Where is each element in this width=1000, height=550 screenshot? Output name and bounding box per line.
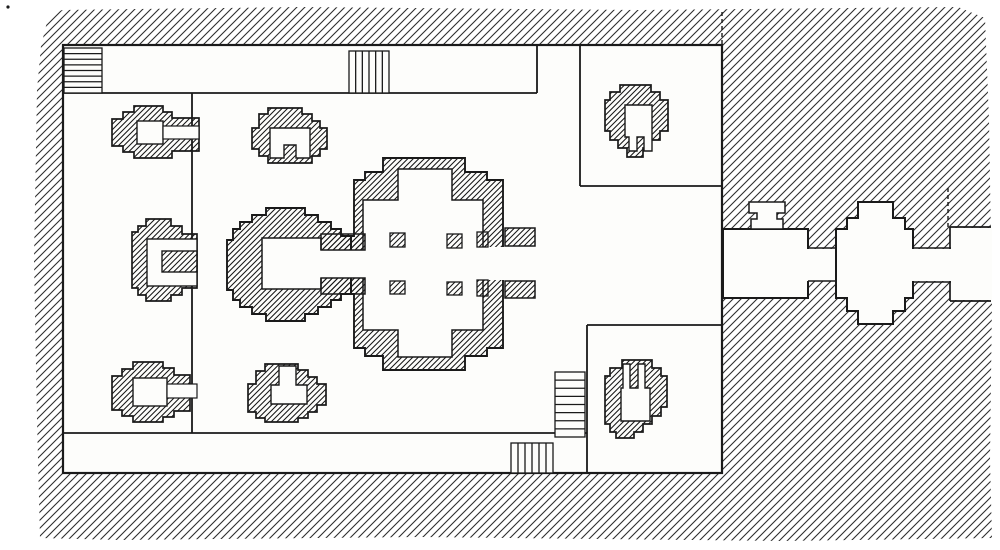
west-shrine-middle-pier <box>162 251 197 272</box>
causeway-east-floor <box>912 249 951 281</box>
east-gate-pavilion <box>836 202 913 324</box>
east-road-floor <box>950 228 992 300</box>
hall-pillar-northwest <box>390 233 405 247</box>
temple-plan-drawing: Engraved floor plan of a walled temple c… <box>0 0 1000 550</box>
hall-pillar-northeast <box>447 234 462 248</box>
plan-engraving: Engraved floor plan of a walled temple c… <box>0 0 1000 550</box>
west-passage-south-wall <box>321 278 365 294</box>
hall-pillar-southeast <box>447 282 462 295</box>
east-porch-north-wall <box>505 228 535 246</box>
causeway-west-floor <box>807 249 837 281</box>
west-passage-floor <box>319 250 365 278</box>
east-porch-south-wall <box>505 281 535 298</box>
west-shrine-north-cella <box>137 121 163 144</box>
west-shrine-south-cella <box>133 378 167 406</box>
east-door-south-pier <box>477 280 488 296</box>
east-door-north-pier <box>477 232 488 247</box>
west-passage-north-wall <box>321 234 365 250</box>
east-porch-floor <box>481 247 533 280</box>
west-sanctuary-cella <box>262 238 321 289</box>
plate-mark <box>6 5 9 8</box>
plan-layer <box>6 5 992 541</box>
west-shrine-south-door <box>167 384 197 398</box>
hall-pillar-southwest <box>390 281 405 294</box>
east-gate-hall <box>723 229 808 298</box>
west-shrine-north-door <box>163 126 199 139</box>
